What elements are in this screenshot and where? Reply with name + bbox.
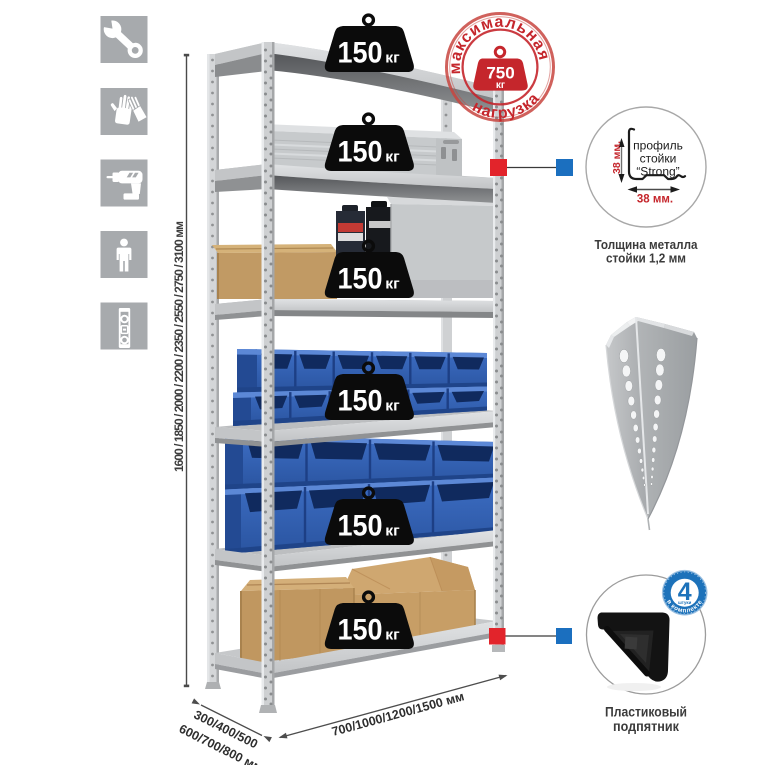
svg-text:1600 / 1850 / 2000 / 2200 / 23: 1600 / 1850 / 2000 / 2200 / 2350 / 2550 … [172, 221, 186, 472]
svg-text:стойки 1,2 мм: стойки 1,2 мм [606, 251, 686, 266]
svg-text:кг: кг [496, 80, 505, 91]
svg-text:стойки: стойки [640, 152, 677, 166]
svg-text:38 мм.: 38 мм. [611, 141, 623, 174]
svg-text:профиль: профиль [633, 139, 683, 153]
svg-text:38 мм.: 38 мм. [637, 194, 673, 206]
svg-text:подпятник: подпятник [613, 719, 679, 734]
svg-text:Пластиковый: Пластиковый [605, 705, 687, 720]
svg-text:“Strong”: “Strong” [636, 165, 679, 179]
svg-text:штуки: штуки [678, 600, 692, 605]
